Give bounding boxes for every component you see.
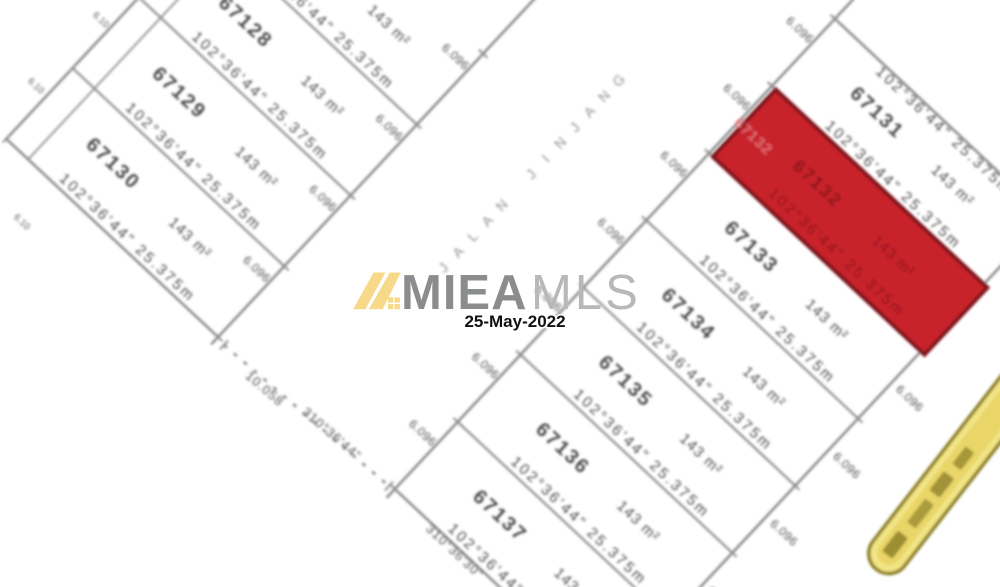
svg-text:25-May-2022: 25-May-2022	[464, 312, 565, 331]
